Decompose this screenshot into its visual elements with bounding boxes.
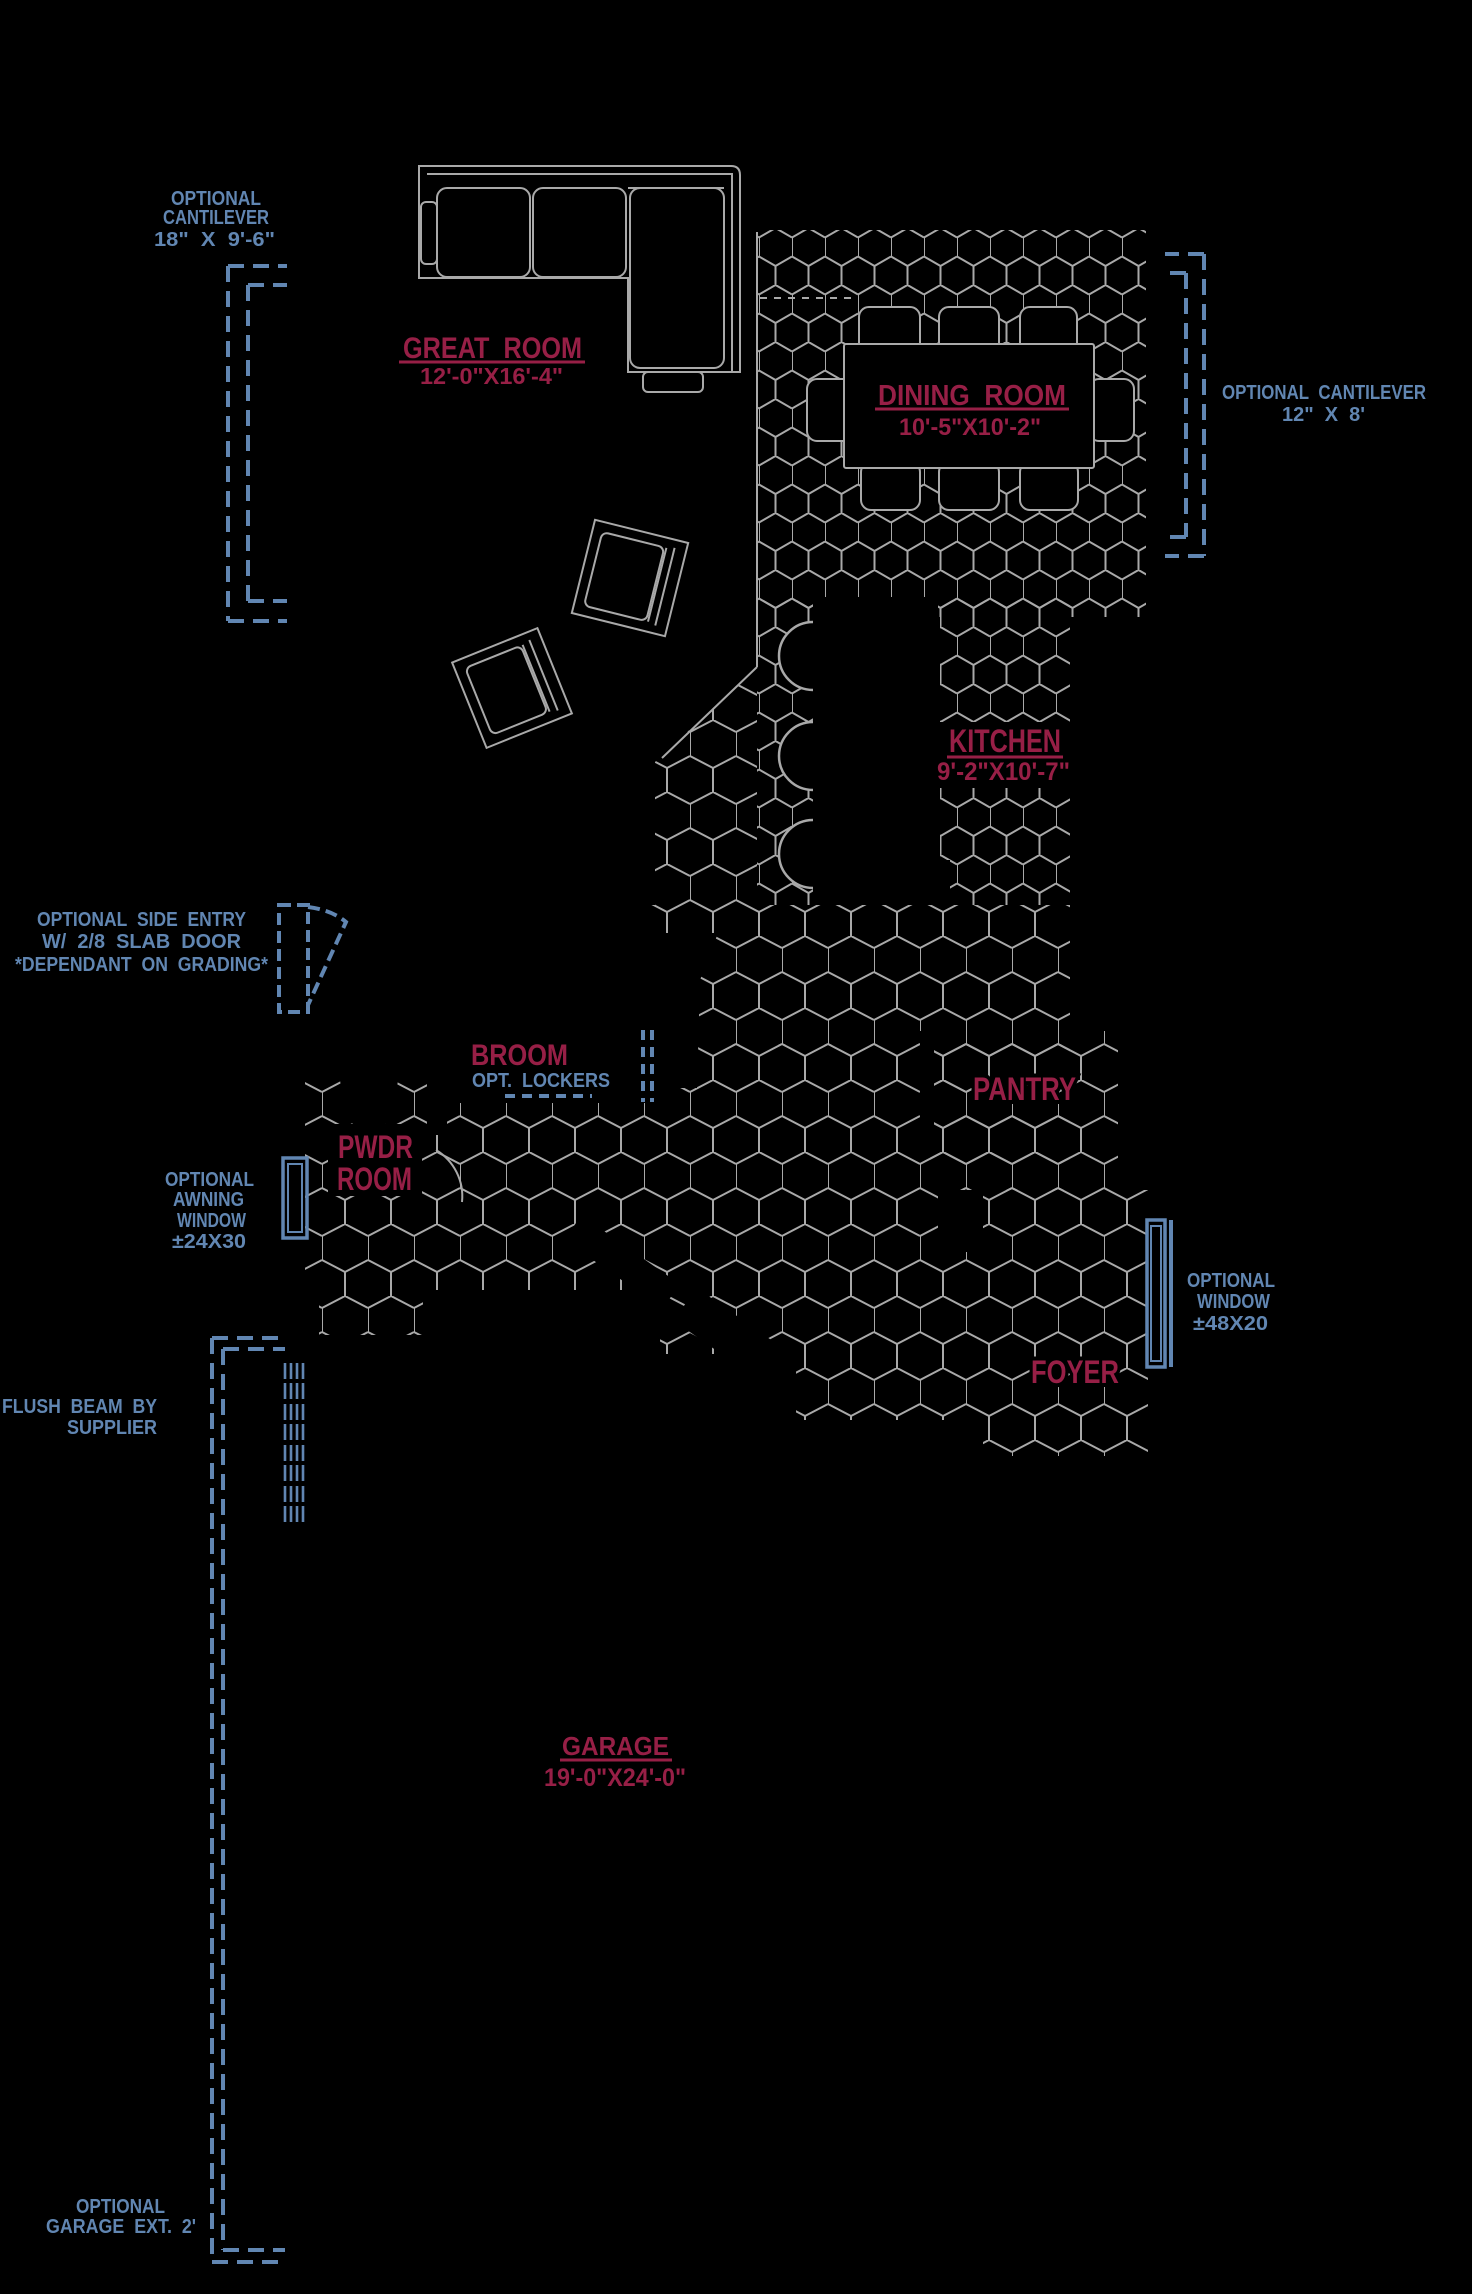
svg-text:OPTIONAL: OPTIONAL [165,1169,254,1191]
svg-text:12'-0"X16'-4": 12'-0"X16'-4" [420,363,563,389]
svg-text:18" X 9'-6": 18" X 9'-6" [154,229,275,251]
svg-text:±24X30: ±24X30 [172,1231,246,1253]
svg-text:WINDOW: WINDOW [1197,1291,1270,1313]
svg-text:OPT. LOCKERS: OPT. LOCKERS [472,1070,610,1092]
svg-text:OPTIONAL: OPTIONAL [76,2196,165,2218]
svg-text:FOYER: FOYER [1031,1354,1119,1390]
svg-text:10'-5"X10'-2": 10'-5"X10'-2" [899,414,1041,441]
svg-text:W/ 2/8 SLAB DOOR: W/ 2/8 SLAB DOOR [42,931,242,953]
svg-text:SUPPLIER: SUPPLIER [67,1417,157,1439]
svg-text:GARAGE EXT. 2': GARAGE EXT. 2' [46,2216,196,2238]
svg-text:OPTIONAL SIDE ENTRY: OPTIONAL SIDE ENTRY [37,909,247,931]
svg-text:GARAGE: GARAGE [562,1731,669,1761]
svg-text:PWDR: PWDR [338,1129,413,1165]
svg-text:12" X 8': 12" X 8' [1282,404,1365,426]
svg-text:9'-2"X10'-7": 9'-2"X10'-7" [937,758,1070,786]
svg-text:AWNING: AWNING [173,1189,244,1211]
svg-text:FLUSH BEAM BY: FLUSH BEAM BY [2,1396,158,1418]
svg-text:WINDOW: WINDOW [177,1210,246,1232]
svg-text:KITCHEN: KITCHEN [949,723,1061,759]
svg-text:CANTILEVER: CANTILEVER [163,207,269,229]
svg-text:*DEPENDANT ON GRADING*: *DEPENDANT ON GRADING* [15,954,268,976]
svg-text:PANTRY: PANTRY [973,1071,1076,1107]
svg-text:OPTIONAL: OPTIONAL [1187,1270,1275,1292]
svg-text:±48X20: ±48X20 [1193,1313,1268,1335]
svg-text:BROOM: BROOM [471,1039,568,1072]
svg-text:OPTIONAL CANTILEVER: OPTIONAL CANTILEVER [1222,382,1426,404]
svg-text:19'-0"X24'-0": 19'-0"X24'-0" [544,1764,686,1792]
svg-text:DINING ROOM: DINING ROOM [878,380,1066,412]
svg-text:ROOM: ROOM [337,1161,412,1197]
svg-text:GREAT ROOM: GREAT ROOM [403,332,582,365]
